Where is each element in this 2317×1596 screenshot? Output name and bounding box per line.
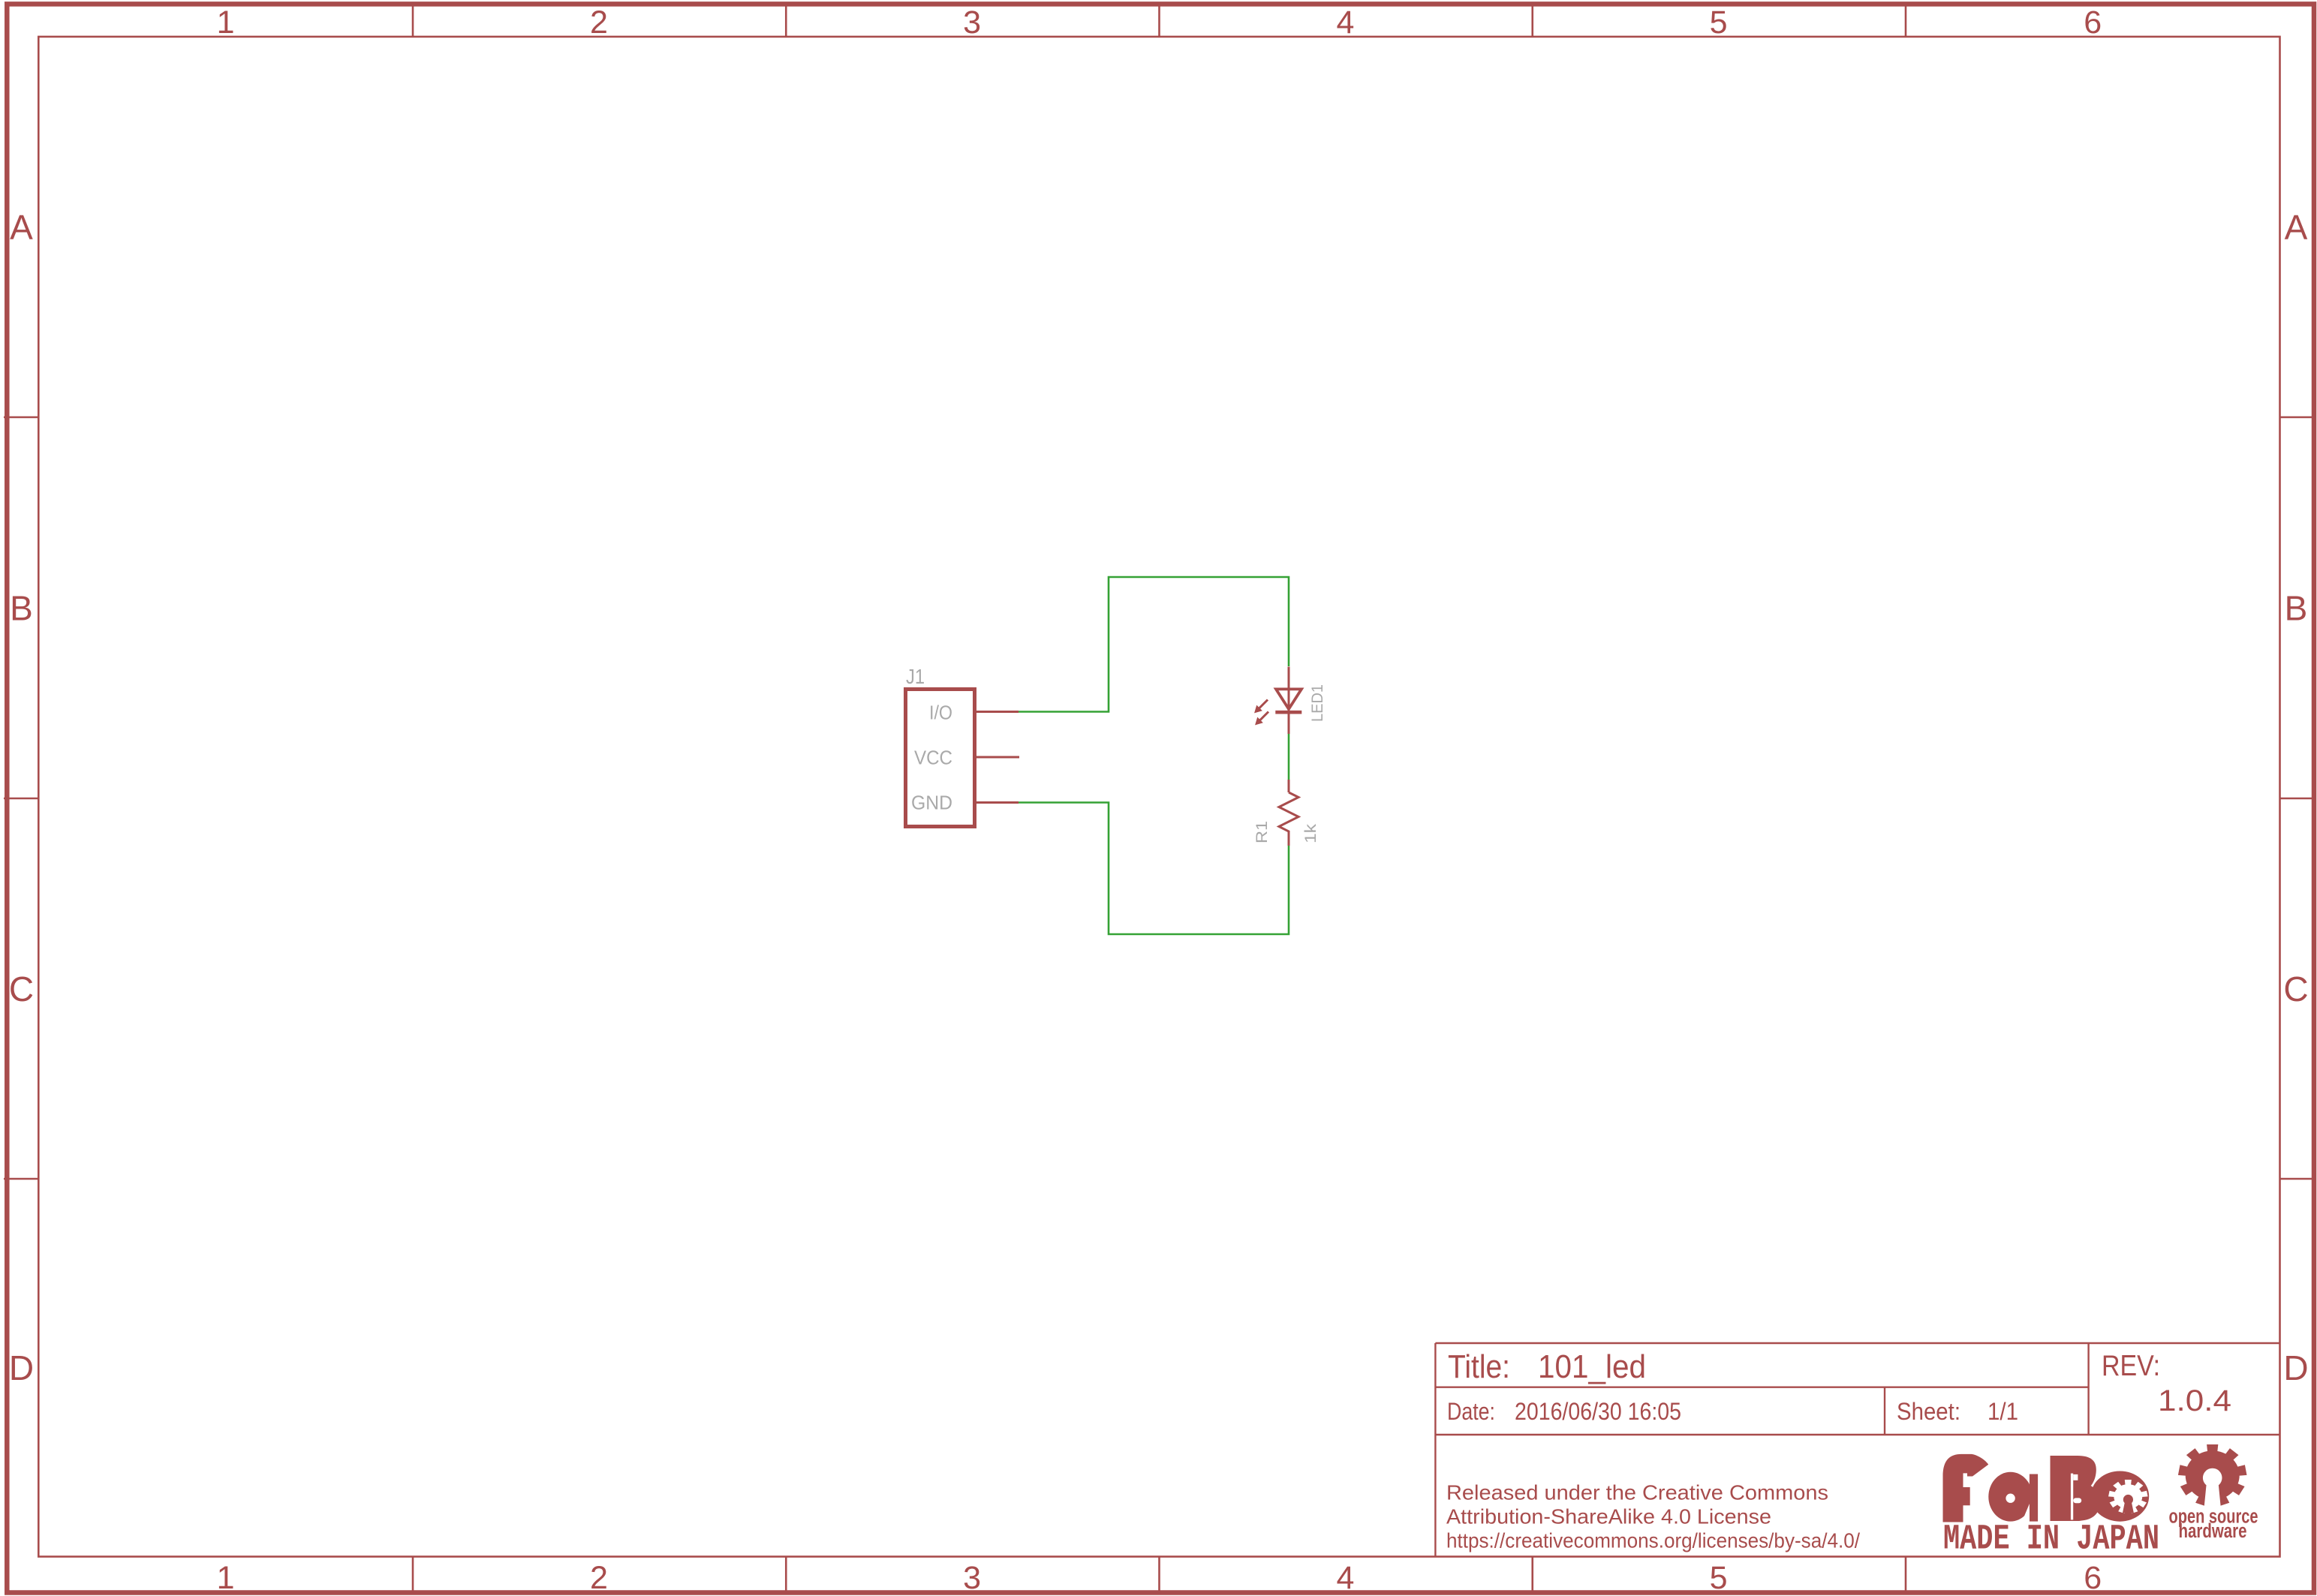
svg-text:2: 2 — [590, 1560, 608, 1596]
svg-text:LED1: LED1 — [1309, 684, 1326, 722]
svg-text:4: 4 — [1336, 1560, 1354, 1596]
svg-text:4: 4 — [1336, 5, 1354, 41]
svg-text:C: C — [9, 969, 34, 1008]
svg-text:D: D — [2283, 1348, 2308, 1387]
svg-text:MADE IN JAPAN: MADE IN JAPAN — [1943, 1520, 2159, 1560]
svg-text:https://creativecommons.org/li: https://creativecommons.org/licenses/by-… — [1446, 1529, 1860, 1552]
svg-text:B: B — [10, 589, 33, 628]
svg-text:3: 3 — [963, 1560, 981, 1596]
svg-text:Released under the Creative Co: Released under the Creative Commons — [1446, 1481, 1828, 1504]
svg-text:J1: J1 — [906, 665, 925, 688]
svg-text:101_led: 101_led — [1538, 1348, 1646, 1385]
svg-text:GND: GND — [911, 792, 952, 814]
svg-text:REV:: REV: — [2102, 1350, 2160, 1382]
svg-text:6: 6 — [2084, 1560, 2102, 1596]
svg-text:1.0.4: 1.0.4 — [2158, 1384, 2231, 1417]
svg-text:VCC: VCC — [914, 747, 952, 769]
svg-text:A: A — [10, 208, 33, 247]
svg-text:1k: 1k — [1302, 823, 1319, 843]
svg-text:Sheet:: Sheet: — [1897, 1398, 1960, 1425]
svg-text:Attribution-ShareAlike 4.0 Lic: Attribution-ShareAlike 4.0 License — [1446, 1505, 1771, 1528]
svg-text:1: 1 — [217, 1560, 235, 1596]
svg-text:5: 5 — [1710, 1560, 1728, 1596]
svg-text:2016/06/30 16:05: 2016/06/30 16:05 — [1515, 1398, 1681, 1425]
svg-text:3: 3 — [963, 5, 981, 41]
svg-text:B: B — [2285, 589, 2308, 628]
svg-text:5: 5 — [1710, 5, 1728, 41]
svg-text:hardware: hardware — [2179, 1519, 2247, 1542]
svg-text:A: A — [2285, 208, 2308, 247]
svg-text:Date:: Date: — [1447, 1398, 1495, 1425]
svg-text:I/O: I/O — [929, 702, 952, 724]
svg-text:C: C — [2283, 969, 2308, 1008]
svg-text:D: D — [9, 1348, 34, 1387]
svg-text:1: 1 — [217, 5, 235, 41]
svg-text:2: 2 — [590, 5, 608, 41]
svg-text:R1: R1 — [1253, 821, 1271, 843]
svg-text:6: 6 — [2084, 5, 2102, 41]
svg-text:Title:: Title: — [1448, 1348, 1510, 1385]
svg-text:1/1: 1/1 — [1988, 1398, 2018, 1425]
